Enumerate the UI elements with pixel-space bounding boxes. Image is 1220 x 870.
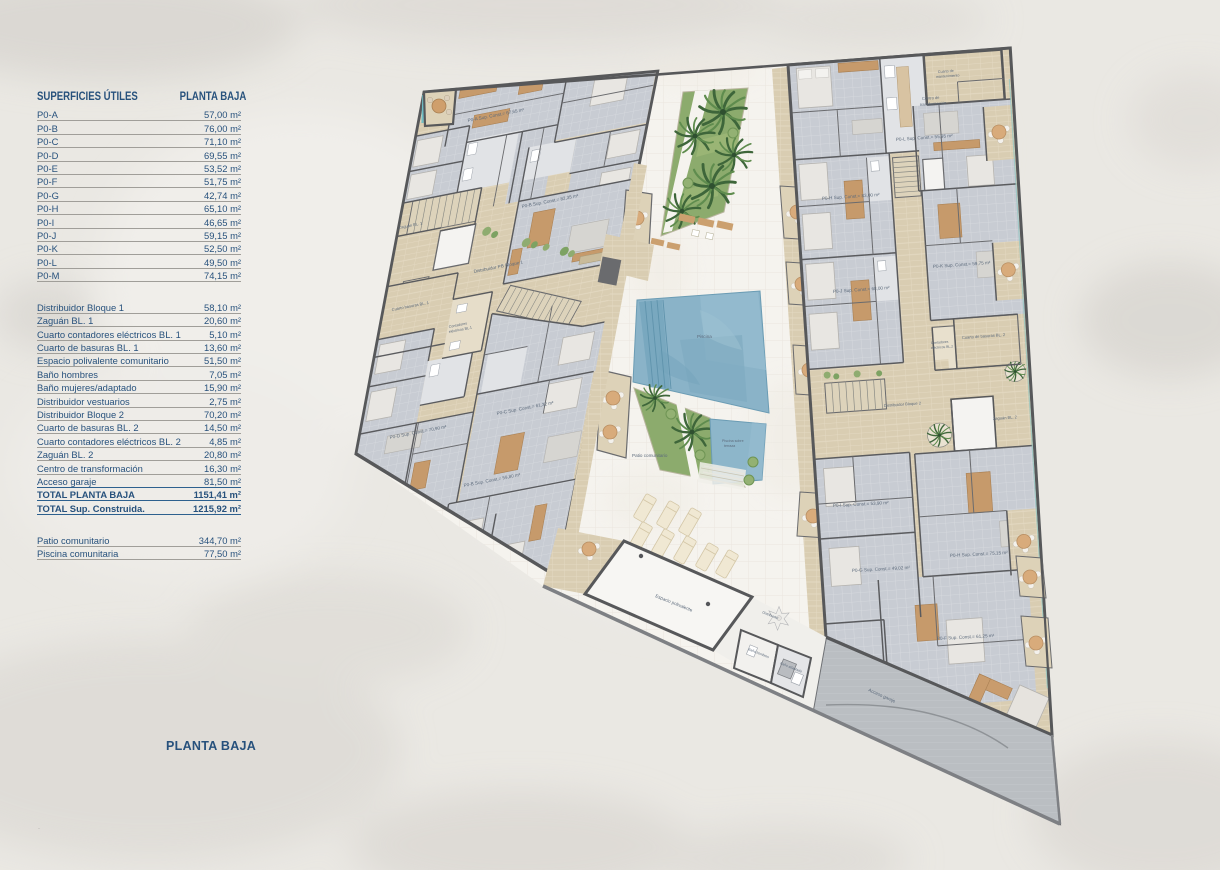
svg-text:Piscina: Piscina — [697, 334, 712, 339]
svg-text:Piscina sobre: Piscina sobre — [722, 439, 744, 443]
svg-text:terraza: terraza — [724, 444, 735, 448]
svg-text:Patio comunitario: Patio comunitario — [632, 453, 668, 458]
